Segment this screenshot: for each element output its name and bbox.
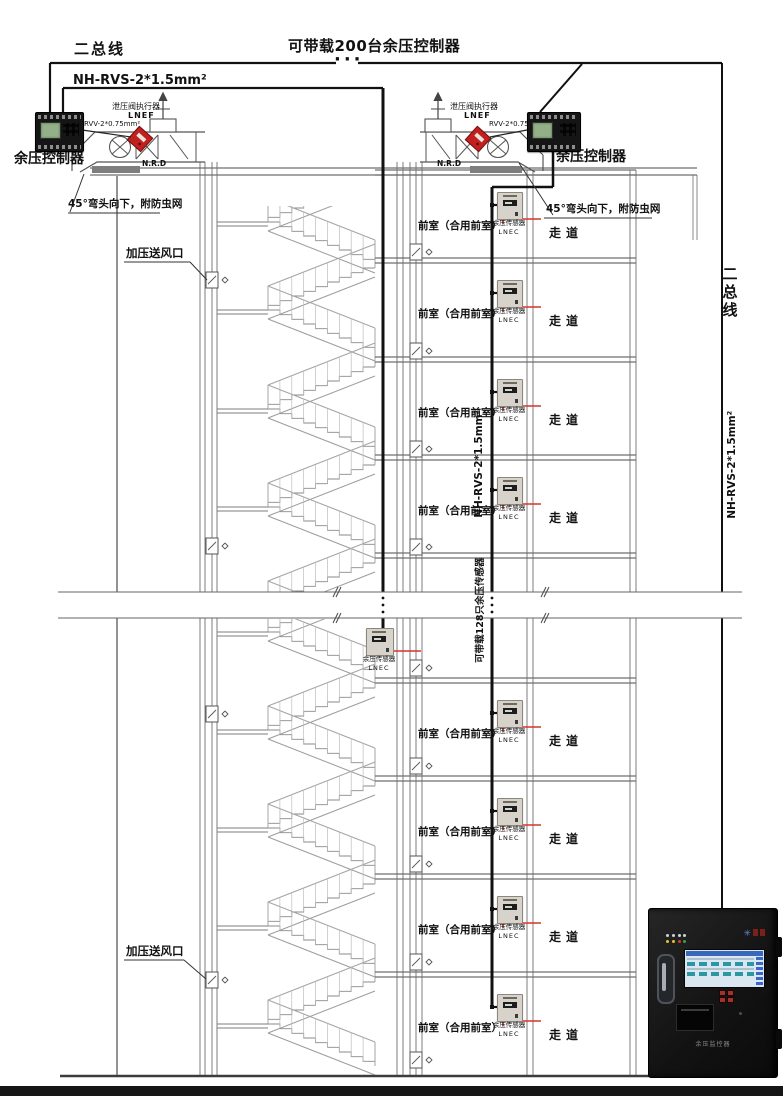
sensor-display-icon bbox=[503, 1002, 517, 1008]
panel-printer bbox=[676, 1004, 714, 1031]
sensor-display-icon bbox=[503, 485, 517, 491]
panel-lcd-screen bbox=[684, 949, 765, 988]
left-actuator-wire-spec: RVV-2*0.75mm² bbox=[84, 121, 140, 129]
front-room-label: 前室（合用前室） bbox=[413, 506, 507, 518]
front-room-label: 前室（合用前室） bbox=[413, 729, 507, 741]
sensor-label-strip bbox=[372, 631, 386, 633]
pressure-monitor-panel: ✳ 余压监控器 bbox=[648, 908, 778, 1078]
left-bus-label: 二总线 bbox=[74, 41, 125, 58]
panel-led-indicators bbox=[666, 934, 688, 945]
sensor-button-icon bbox=[515, 818, 518, 822]
bus-ellipsis: ··· bbox=[334, 50, 364, 70]
left-elbow-note: 45°弯头向下，附防虫网 bbox=[68, 199, 182, 211]
sensor-label-strip bbox=[503, 997, 517, 999]
sensor-label-strip bbox=[503, 283, 517, 285]
sensor-label-strip bbox=[503, 899, 517, 901]
panel-hinge-icon bbox=[776, 937, 782, 957]
right-duct-damper-label: N.R.D bbox=[437, 160, 461, 168]
sensor-button-icon bbox=[515, 1014, 518, 1018]
sensor-button-icon bbox=[386, 648, 389, 652]
terminal-row-icon bbox=[38, 145, 81, 149]
pressure-sensor-device bbox=[497, 477, 523, 505]
right-bus-label: 二总线 bbox=[721, 266, 738, 320]
sensor-button-icon bbox=[515, 399, 518, 403]
left-controller-label: 余压控制器 bbox=[14, 152, 84, 167]
front-room-label: 前室（合用前室） bbox=[413, 827, 507, 839]
sensor-display-icon bbox=[503, 904, 517, 910]
panel-handle bbox=[657, 954, 675, 1004]
controller-lcd-icon bbox=[532, 122, 553, 139]
corridor-label: 走道 bbox=[549, 1029, 583, 1042]
sensor-label-strip bbox=[503, 195, 517, 197]
pressure-sensor-model: LNEC bbox=[357, 665, 401, 672]
pressure-sensor-device bbox=[366, 628, 394, 656]
monitor-model-label: 余压监控器 bbox=[649, 1039, 777, 1048]
front-room-label: 前室（合用前室） bbox=[413, 221, 507, 233]
pressure-sensor-device bbox=[497, 798, 523, 826]
right-bus-wire-spec: NH-RVS-2*1.5mm² bbox=[727, 423, 739, 519]
riser-capacity-note: 可带载128只余压传感器 bbox=[476, 552, 486, 668]
corridor-label: 走道 bbox=[549, 315, 583, 328]
sensor-button-icon bbox=[515, 300, 518, 304]
supply-outlet-label-bottom: 加压送风口 bbox=[126, 945, 184, 958]
sensor-display-icon bbox=[372, 636, 386, 642]
sensor-display-icon bbox=[503, 288, 517, 294]
sensor-button-icon bbox=[515, 497, 518, 501]
left-bus-wire-spec: NH-RVS-2*1.5mm² bbox=[73, 74, 207, 88]
sensor-display-icon bbox=[503, 387, 517, 393]
sensor-display-icon bbox=[503, 708, 517, 714]
front-room-label: 前室（合用前室） bbox=[413, 309, 507, 321]
system-capacity-title: 可带载200台余压控制器 bbox=[288, 38, 448, 55]
sensor-label-strip bbox=[503, 703, 517, 705]
terminal-row-icon bbox=[530, 115, 578, 119]
sensor-button-icon bbox=[515, 916, 518, 920]
right-controller-label: 余压控制器 bbox=[556, 150, 626, 165]
pressure-sensor-device bbox=[497, 192, 523, 220]
front-room-label: 前室（合用前室） bbox=[413, 925, 507, 937]
corridor-label: 走道 bbox=[549, 414, 583, 427]
sensor-display-icon bbox=[503, 200, 517, 206]
sensor-display-icon bbox=[503, 806, 517, 812]
corridor-label: 走道 bbox=[549, 512, 583, 525]
sensor-button-icon bbox=[515, 212, 518, 216]
corridor-label: 走道 bbox=[549, 227, 583, 240]
supply-outlet-label-top: 加压送风口 bbox=[126, 247, 184, 260]
terminal-row-icon bbox=[38, 115, 81, 119]
sensor-label-strip bbox=[503, 480, 517, 482]
corridor-label: 走道 bbox=[549, 931, 583, 944]
pressure-sensor-device bbox=[497, 379, 523, 407]
front-room-label: 前室（合用前室） bbox=[413, 1023, 507, 1035]
left-duct-damper-label: N.R.D bbox=[142, 160, 166, 168]
schematic-page: 可带载200台余压控制器 ··· 二总线 NH-RVS-2*1.5mm² 泄压阀… bbox=[0, 0, 783, 1096]
right-actuator-model: LNEF bbox=[464, 112, 491, 121]
controller-keys-icon bbox=[63, 123, 79, 136]
right-pressure-controller-device bbox=[527, 112, 581, 152]
sensor-button-icon bbox=[515, 720, 518, 724]
corridor-label: 走道 bbox=[549, 735, 583, 748]
riser-wire-spec: NH-RVS-2*1.5mm² bbox=[474, 422, 486, 518]
pressure-sensor-device bbox=[497, 994, 523, 1022]
pressure-sensor-device bbox=[497, 896, 523, 924]
front-room-label: 前室（合用前室） bbox=[413, 408, 507, 420]
pressure-sensor-label: 余压传感器 bbox=[357, 656, 401, 663]
pressure-sensor-device bbox=[497, 700, 523, 728]
sensor-label-strip bbox=[503, 382, 517, 384]
right-elbow-note: 45°弯头向下，附防虫网 bbox=[546, 204, 660, 216]
pressure-sensor-device bbox=[497, 280, 523, 308]
brand-logo-icon: ✳ bbox=[743, 929, 765, 939]
sensor-label-strip bbox=[503, 801, 517, 803]
panel-buttons bbox=[719, 990, 732, 1001]
controller-lcd-icon bbox=[40, 122, 61, 139]
left-pressure-controller-device bbox=[35, 112, 84, 152]
panel-reset-hole-icon bbox=[739, 1012, 742, 1015]
terminal-row-icon bbox=[530, 145, 578, 149]
controller-keys-icon bbox=[560, 123, 576, 136]
corridor-label: 走道 bbox=[549, 833, 583, 846]
